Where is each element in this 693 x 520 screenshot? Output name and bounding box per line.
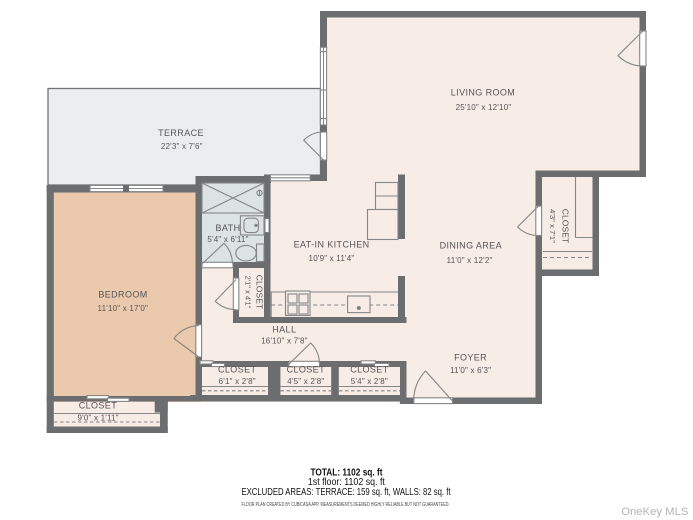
- svg-text:2'1" x 4'1": 2'1" x 4'1": [244, 276, 253, 309]
- svg-text:DINING AREA: DINING AREA: [440, 240, 502, 250]
- svg-text:25'10" x 12'10": 25'10" x 12'10": [456, 103, 512, 112]
- svg-text:4'3" x 7'1": 4'3" x 7'1": [548, 209, 557, 243]
- svg-text:FLOOR PLAN CREATED BY CUBICASA: FLOOR PLAN CREATED BY CUBICASA APP. MEAS…: [242, 502, 450, 508]
- svg-text:BATH: BATH: [216, 223, 241, 233]
- svg-text:CLOSET: CLOSET: [218, 365, 257, 375]
- svg-text:11'10" x 17'0": 11'10" x 17'0": [98, 304, 149, 313]
- svg-text:4'5" x 2'8": 4'5" x 2'8": [287, 377, 324, 386]
- svg-text:CLOSET: CLOSET: [79, 400, 118, 410]
- svg-text:EXCLUDED AREAS: TERRACE: 159 s: EXCLUDED AREAS: TERRACE: 159 sq. ft, WAL…: [242, 487, 451, 498]
- svg-text:CLOSET: CLOSET: [350, 365, 389, 375]
- svg-text:CLOSET: CLOSET: [287, 365, 326, 375]
- svg-text:10'9" x 11'4": 10'9" x 11'4": [309, 254, 355, 263]
- svg-text:6'1" x 2'8": 6'1" x 2'8": [219, 377, 256, 386]
- svg-text:22'3" x 7'6": 22'3" x 7'6": [161, 142, 203, 151]
- svg-text:5'4" x 2'8": 5'4" x 2'8": [351, 377, 388, 386]
- svg-text:EAT-IN KITCHEN: EAT-IN KITCHEN: [294, 240, 370, 250]
- svg-text:HALL: HALL: [272, 324, 296, 334]
- svg-text:16'10" x 7'8": 16'10" x 7'8": [261, 336, 307, 345]
- svg-text:CLOSET: CLOSET: [255, 275, 265, 310]
- svg-text:OneKey MLS: OneKey MLS: [621, 506, 689, 518]
- svg-text:11'0" x 12'2": 11'0" x 12'2": [447, 256, 493, 265]
- svg-text:5'4" x 6'11": 5'4" x 6'11": [207, 235, 248, 244]
- svg-text:BEDROOM: BEDROOM: [98, 289, 147, 299]
- svg-text:TERRACE: TERRACE: [158, 128, 204, 138]
- svg-text:9'0" x 1'11": 9'0" x 1'11": [77, 414, 118, 423]
- svg-text:FOYER: FOYER: [454, 352, 487, 362]
- svg-text:11'0" x 6'3": 11'0" x 6'3": [450, 366, 491, 375]
- svg-text:LIVING ROOM: LIVING ROOM: [451, 88, 515, 98]
- svg-text:CLOSET: CLOSET: [561, 209, 571, 244]
